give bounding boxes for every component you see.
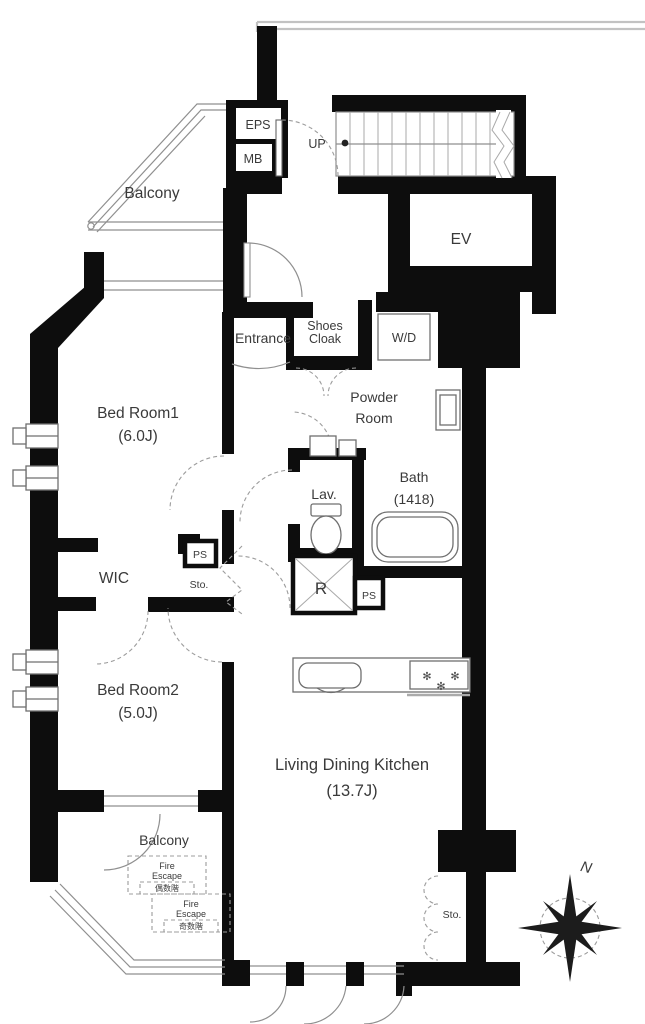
washbasin	[436, 390, 460, 430]
bedroom2-window-band	[104, 796, 198, 806]
label-fire-escape2-2: Escape	[176, 909, 206, 919]
label-sto-upper: Sto.	[190, 579, 209, 591]
svg-text:✻: ✻	[422, 671, 431, 683]
shoes-cloak-doors	[296, 368, 356, 396]
label-shoes-cloak-2: Cloak	[309, 332, 342, 346]
bathtub	[372, 512, 458, 562]
up-arrow-dot	[342, 140, 349, 147]
sto-bottom-folding-doors	[424, 876, 438, 960]
room-labels: Balcony EPS MB UP EV Entrance Shoes Cloa…	[97, 118, 593, 931]
stair-break	[496, 110, 511, 178]
label-eps: EPS	[245, 118, 270, 132]
label-bedroom1-size: (6.0J)	[118, 428, 158, 445]
label-bath: Bath	[400, 469, 429, 485]
stairs	[336, 110, 514, 178]
label-bedroom2: Bed Room2	[97, 682, 179, 699]
toilet	[311, 504, 341, 554]
kitchen-sink	[299, 663, 361, 688]
label-balcony-top: Balcony	[124, 185, 179, 202]
svg-text:✻: ✻	[450, 671, 459, 683]
label-wic: WIC	[99, 570, 129, 587]
label-ldk: Living Dining Kitchen	[275, 756, 429, 774]
label-bedroom1: Bed Room1	[97, 405, 179, 422]
label-fire-escape1-2: Escape	[152, 871, 182, 881]
label-fire-escape2-note: 奇数階	[179, 921, 203, 931]
label-ev: EV	[451, 231, 472, 248]
label-fire-escape1-note: 偶数階	[155, 883, 179, 893]
label-lav: Lav.	[311, 486, 336, 502]
label-ps-upper: PS	[193, 549, 207, 561]
label-bedroom2-size: (5.0J)	[118, 705, 158, 722]
label-entrance: Entrance	[235, 330, 291, 346]
label-balcony-bottom: Balcony	[139, 832, 189, 848]
label-shoes-cloak-1: Shoes	[307, 319, 342, 333]
label-fire-escape2-1: Fire	[183, 899, 199, 909]
label-sto-bottom: Sto.	[443, 909, 462, 921]
label-powder-2: Room	[355, 410, 392, 426]
label-mb: MB	[244, 152, 263, 166]
lav-cabinet-boxes	[310, 436, 356, 456]
label-powder-1: Powder	[350, 389, 398, 405]
floor-plan-drawing: ✻ ✻ ✻	[0, 0, 645, 1024]
entrance-step-line	[232, 362, 290, 369]
label-ldk-size: (13.7J)	[326, 782, 377, 800]
label-ps-lower: PS	[362, 590, 376, 602]
bedroom1-top-window	[104, 281, 223, 290]
balcony-top-outline	[88, 104, 226, 232]
site-boundary-lines	[257, 22, 645, 32]
label-bath-size: (1418)	[394, 491, 434, 507]
floor-plan-page: ✻ ✻ ✻	[0, 0, 645, 1024]
ldk-bottom-windows	[250, 966, 404, 1024]
label-wd: W/D	[392, 331, 416, 345]
label-fire-escape1-1: Fire	[159, 861, 175, 871]
label-compass-north: N	[579, 858, 594, 877]
svg-text:✻: ✻	[436, 681, 445, 693]
label-refrigerator: R	[315, 579, 327, 598]
compass-rose	[518, 874, 622, 982]
label-up: UP	[308, 137, 325, 151]
